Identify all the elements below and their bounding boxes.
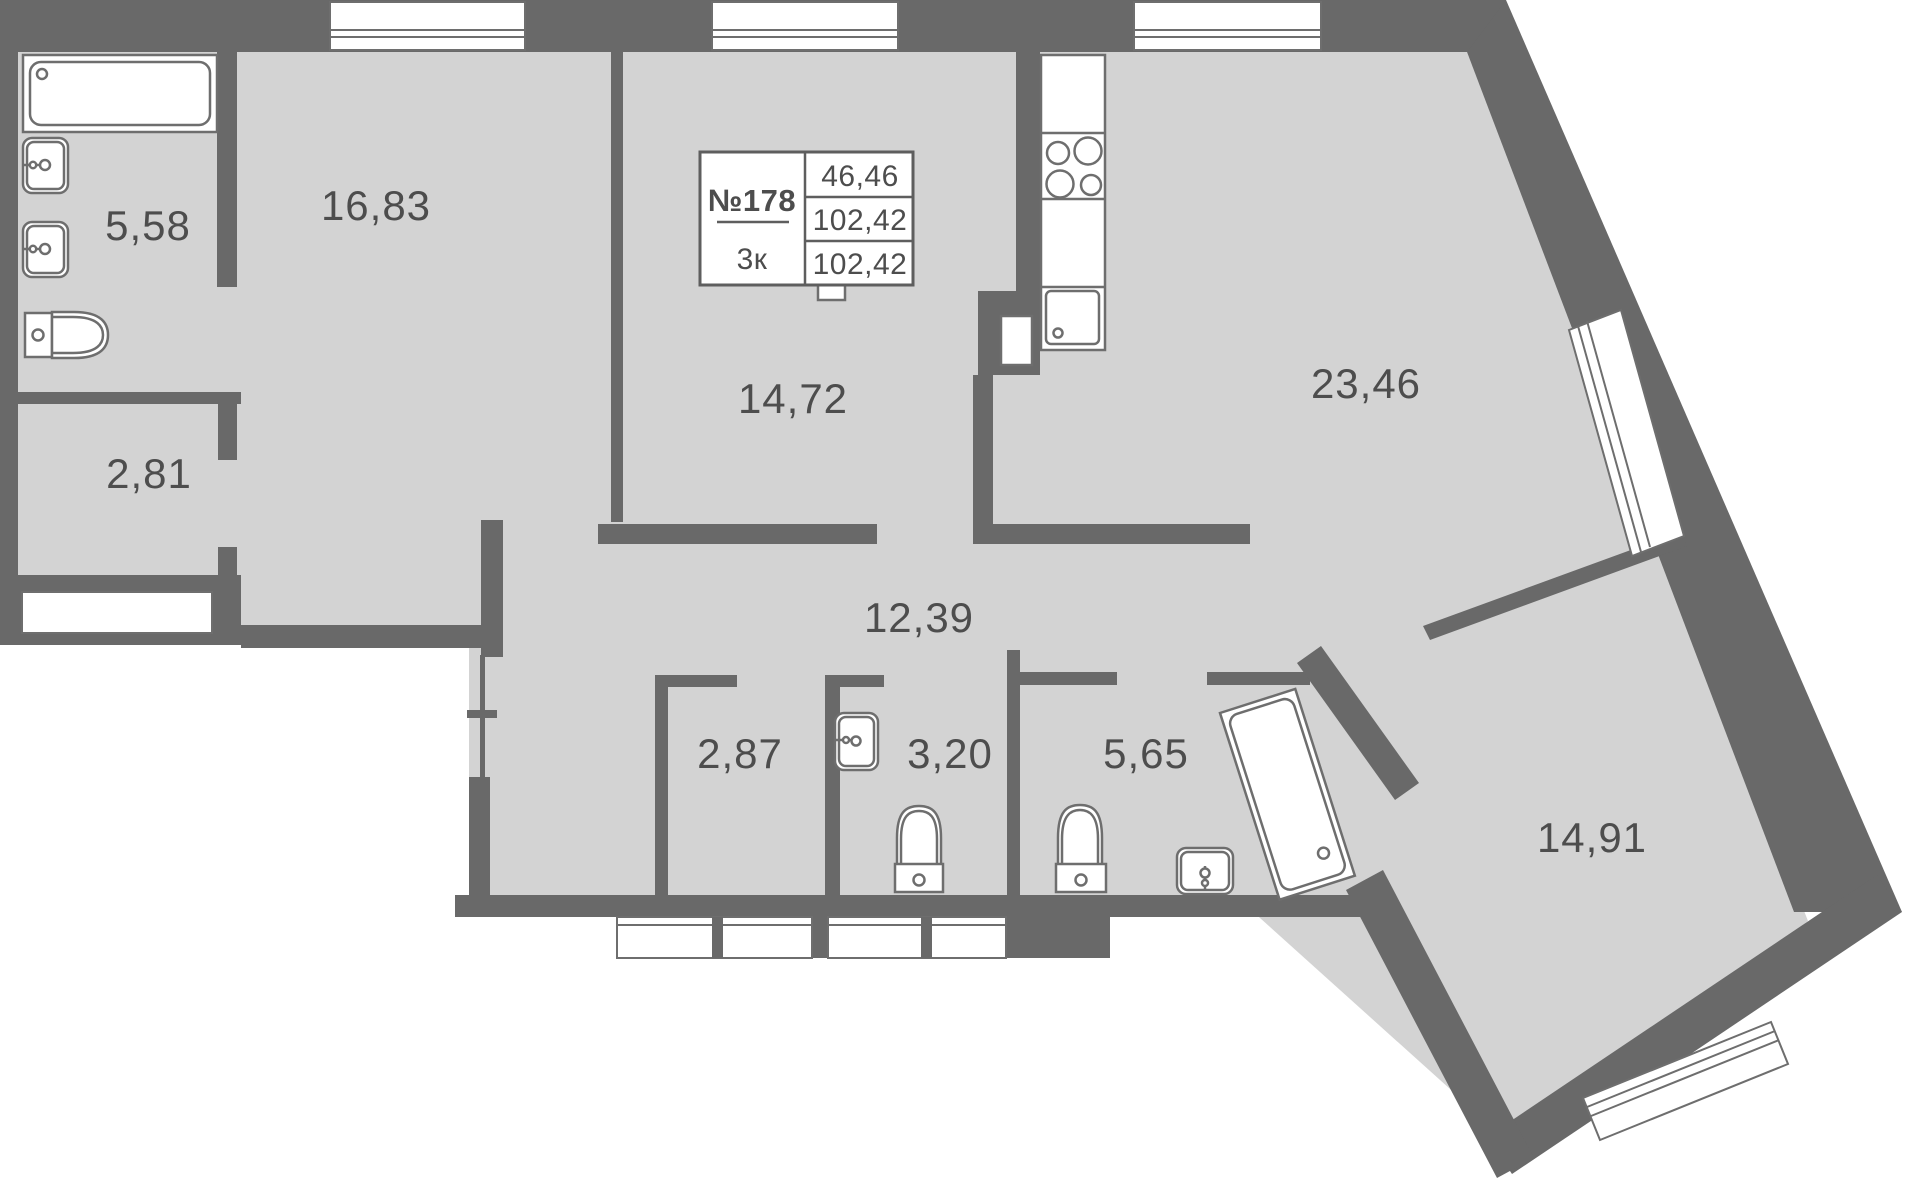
unit-number: №178 <box>708 183 796 218</box>
shaft-box <box>1001 316 1032 365</box>
room-label-bedroom-1: 16,83 <box>321 182 431 229</box>
toilet-icon <box>25 312 108 358</box>
floor-plan-svg: 5,5816,8314,7223,462,8112,392,873,205,65… <box>0 0 1917 1179</box>
wall-entry-block <box>469 777 490 895</box>
wall-bath2-top-left <box>1020 672 1117 685</box>
window-bottom-1 <box>617 917 812 958</box>
wall-storage-top <box>18 392 241 404</box>
unit-info-box: №178 3к 46,46 102,42 102,42 <box>700 152 913 285</box>
wall-kitchen-lower <box>973 375 993 535</box>
wall-bath2-top-right <box>1207 672 1310 685</box>
room-label-wc: 3,20 <box>907 730 993 777</box>
room-label-wardrobe: 2,87 <box>697 730 783 777</box>
window-top-2 <box>712 2 898 50</box>
window-top-3 <box>1134 2 1321 50</box>
toilet-icon <box>895 806 943 892</box>
kitchen-sink-icon <box>1046 291 1099 344</box>
wall-bottom-chunk <box>1005 917 1110 958</box>
wall-vestibule-bottom <box>241 625 490 648</box>
room-label-bathroom-2: 5,65 <box>1103 730 1189 777</box>
room-label-bathroom-top: 5,58 <box>105 202 191 249</box>
unit-area-total-2: 102,42 <box>813 248 908 281</box>
wall-storage-pillar-up <box>218 392 237 460</box>
kitchen-counter <box>1041 55 1105 350</box>
wall-bedroom2-bottom <box>598 524 877 544</box>
wall-hall-top-right <box>973 524 1250 544</box>
wall-wc-top <box>825 675 884 687</box>
wall-wc-bath2 <box>1007 650 1020 897</box>
wall-wardrobe-wc <box>825 675 840 920</box>
wall-wardrobe-left <box>655 675 668 897</box>
bathtub-icon <box>23 55 217 132</box>
room-label-hallway: 12,39 <box>864 594 974 641</box>
room-label-bedroom-2: 14,72 <box>738 375 848 422</box>
floor-plan: 5,5816,8314,7223,462,8112,392,873,205,65… <box>0 0 1917 1179</box>
sink-icon <box>23 138 68 193</box>
room-label-storage: 2,81 <box>106 450 192 497</box>
unit-area-total: 102,42 <box>813 204 908 237</box>
wall-left <box>0 0 18 645</box>
unit-rooms: 3к <box>737 243 768 276</box>
wall-storage-pillar-low <box>218 547 237 625</box>
wall-bath-right <box>217 52 237 287</box>
entry-door-handle <box>467 710 497 718</box>
window-left <box>22 592 212 633</box>
window-top-1 <box>330 2 525 50</box>
wall-bedroom1-divider <box>611 52 623 522</box>
sink-icon <box>1177 848 1233 894</box>
sink-icon <box>23 222 68 277</box>
window-bottom-2 <box>828 917 1006 958</box>
unit-area-living: 46,46 <box>821 160 899 193</box>
wall-wardrobe-top <box>655 675 737 687</box>
wall-vestibule <box>481 520 503 657</box>
toilet-icon <box>1056 805 1106 892</box>
room-label-bedroom-3: 14,91 <box>1537 814 1647 861</box>
sink-icon <box>835 713 878 770</box>
room-label-kitchen-living: 23,46 <box>1311 360 1421 407</box>
